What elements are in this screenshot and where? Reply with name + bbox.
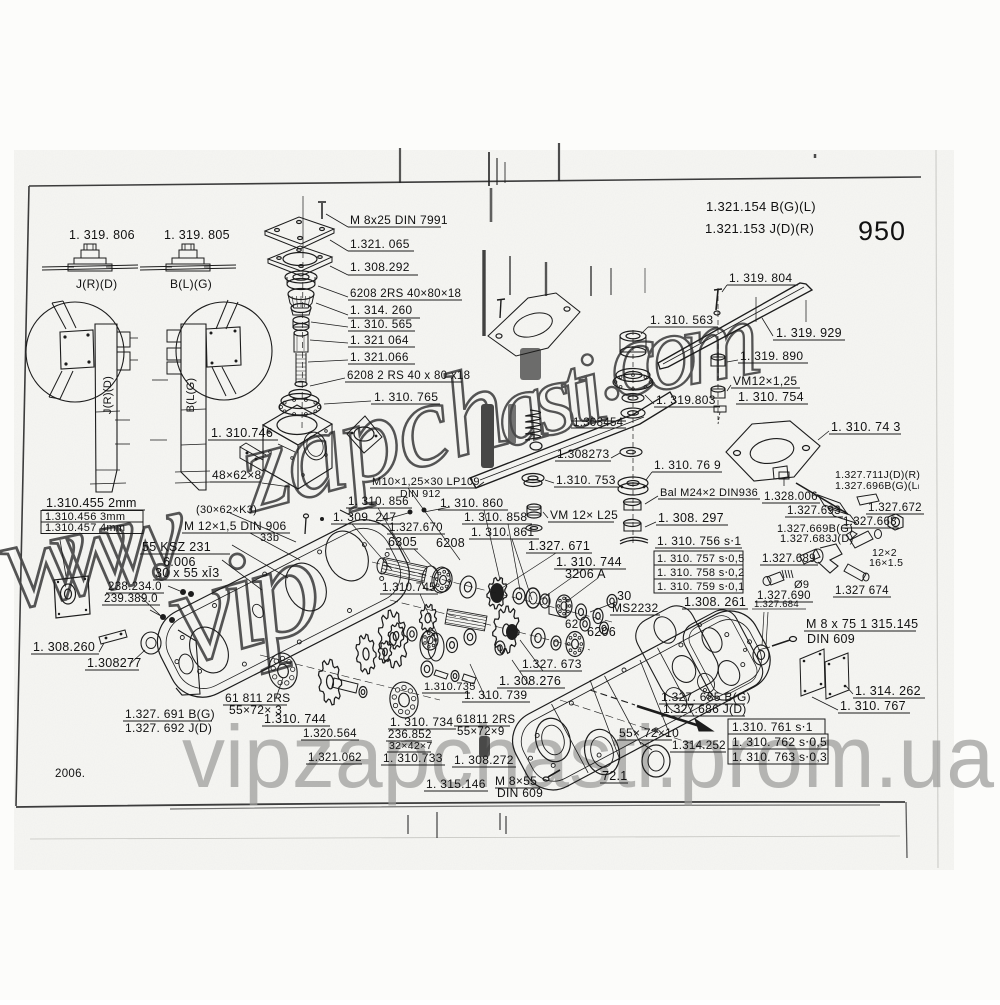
svg-text:30 x 55 xĪ3: 30 x 55 xĪ3 bbox=[155, 566, 219, 580]
svg-text:1.310. 761 s⋅1: 1.310. 761 s⋅1 bbox=[732, 720, 813, 734]
svg-text:1.327.670: 1.327.670 bbox=[389, 522, 443, 534]
svg-text:2006.: 2006. bbox=[55, 768, 85, 780]
svg-text:1.327.683J(D): 1.327.683J(D) bbox=[780, 533, 854, 545]
svg-text:1. 310. 762 s⋅0,5: 1. 310. 762 s⋅0,5 bbox=[732, 735, 827, 749]
svg-text:1.327. 692 J(D): 1.327. 692 J(D) bbox=[125, 721, 212, 735]
svg-text:1.328.006: 1.328.006 bbox=[764, 491, 818, 503]
svg-text:1. 321.066: 1. 321.066 bbox=[350, 350, 409, 364]
svg-text:1. 310. 758 s⋅0,2: 1. 310. 758 s⋅0,2 bbox=[657, 567, 745, 579]
svg-text:55 KSZ 231: 55 KSZ 231 bbox=[142, 540, 211, 554]
svg-text:J(R)(D): J(R)(D) bbox=[76, 277, 117, 291]
svg-text:1. 310. 861: 1. 310. 861 bbox=[471, 525, 534, 539]
svg-text:1.320.564: 1.320.564 bbox=[303, 728, 357, 740]
svg-text:VM12×1,25: VM12×1,25 bbox=[733, 374, 797, 388]
svg-text:1.308277: 1.308277 bbox=[87, 656, 142, 670]
svg-text:MS2232: MS2232 bbox=[612, 601, 659, 615]
svg-text:1.321. 065: 1.321. 065 bbox=[350, 237, 410, 251]
svg-text:1.321.154 B(G)(L): 1.321.154 B(G)(L) bbox=[706, 199, 816, 214]
svg-text:1. 310. 767: 1. 310. 767 bbox=[840, 699, 906, 713]
svg-text:61811 2RS: 61811 2RS bbox=[456, 714, 515, 726]
svg-text:1. 308. 297: 1. 308. 297 bbox=[658, 511, 724, 525]
svg-text:1.327 674: 1.327 674 bbox=[835, 585, 889, 597]
svg-text:(30×62×K3): (30×62×K3) bbox=[196, 504, 257, 516]
svg-text:1. 314. 260: 1. 314. 260 bbox=[350, 303, 412, 317]
svg-text:M 8x25 DIN 7991: M 8x25 DIN 7991 bbox=[350, 213, 448, 227]
svg-text:1. 308.276: 1. 308.276 bbox=[499, 674, 561, 688]
svg-text:B(L(G): B(L(G) bbox=[185, 378, 197, 413]
svg-text:J(R)(D): J(R)(D) bbox=[102, 376, 114, 414]
svg-text:1. 319. 804: 1. 319. 804 bbox=[729, 271, 792, 285]
svg-text:1.327. 671: 1.327. 671 bbox=[528, 539, 590, 553]
svg-text:1. 314. 262: 1. 314. 262 bbox=[855, 684, 921, 698]
svg-text:1. 310. 860: 1. 310. 860 bbox=[440, 496, 503, 510]
svg-text:62: 62 bbox=[565, 619, 578, 631]
svg-text:DIN 609: DIN 609 bbox=[807, 632, 855, 646]
svg-text:1.327.686 J(D): 1.327.686 J(D) bbox=[663, 702, 747, 716]
svg-text:M10×1,25×30 LP109: M10×1,25×30 LP109 bbox=[372, 476, 480, 488]
svg-text:1. 310. 565: 1. 310. 565 bbox=[350, 317, 412, 331]
svg-text:6208 2 RS 40 x 80 x18: 6208 2 RS 40 x 80 x18 bbox=[347, 370, 470, 382]
svg-text:1. 310. 856: 1. 310. 856 bbox=[348, 496, 409, 508]
svg-text:1. 319. 929: 1. 319. 929 bbox=[776, 326, 842, 340]
svg-text:950: 950 bbox=[858, 216, 906, 246]
svg-text:6208 2RS 40×80×18: 6208 2RS 40×80×18 bbox=[350, 288, 461, 300]
svg-text:1. 310. 563: 1. 310. 563 bbox=[650, 313, 713, 327]
svg-text:1.310. 753: 1.310. 753 bbox=[556, 473, 616, 487]
svg-text:1. 310. 858: 1. 310. 858 bbox=[464, 510, 527, 524]
svg-text:238.234.0: 238.234.0 bbox=[108, 581, 162, 593]
svg-text:55× 72×10: 55× 72×10 bbox=[619, 726, 679, 740]
svg-text:1. 319. 890: 1. 319. 890 bbox=[740, 349, 803, 363]
svg-text:1. 321 064: 1. 321 064 bbox=[350, 333, 409, 347]
svg-text:1.327.689: 1.327.689 bbox=[762, 553, 816, 565]
svg-text:1.308273: 1.308273 bbox=[557, 447, 609, 461]
svg-text:48×62×8: 48×62×8 bbox=[212, 468, 262, 482]
svg-text:1.327.684: 1.327.684 bbox=[754, 599, 799, 610]
svg-text:1. 310. 76 9: 1. 310. 76 9 bbox=[654, 458, 721, 472]
svg-text:1. 309. 247: 1. 309. 247 bbox=[333, 510, 396, 524]
svg-text:1. 310. 765: 1. 310. 765 bbox=[374, 390, 438, 404]
svg-text:1. 310. 763 s⋅0,3: 1. 310. 763 s⋅0,3 bbox=[732, 750, 827, 764]
svg-text:1. 315.146: 1. 315.146 bbox=[426, 777, 486, 791]
svg-text:16×1.5: 16×1.5 bbox=[869, 557, 903, 569]
svg-text:72.1: 72.1 bbox=[602, 769, 628, 783]
svg-text:1.310.745: 1.310.745 bbox=[382, 582, 436, 594]
svg-text:1. 310. 739: 1. 310. 739 bbox=[464, 688, 527, 702]
svg-text:1. 319. 806: 1. 319. 806 bbox=[69, 228, 135, 242]
svg-text:6208: 6208 bbox=[436, 536, 465, 550]
svg-text:1.310. 744: 1.310. 744 bbox=[264, 712, 326, 726]
svg-text:6305: 6305 bbox=[388, 535, 417, 549]
svg-text:1.308. 261: 1.308. 261 bbox=[684, 595, 746, 609]
svg-text:1.327.696B(G)(Lₗ: 1.327.696B(G)(Lₗ bbox=[835, 480, 920, 492]
svg-text:1.310.455 2mm: 1.310.455 2mm bbox=[46, 496, 137, 510]
svg-text:1. 308.292: 1. 308.292 bbox=[350, 260, 410, 274]
svg-text:3206 A: 3206 A bbox=[565, 567, 606, 581]
svg-text:1.327.693: 1.327.693 bbox=[787, 505, 841, 517]
svg-text:1. 310. 759 s⋅0,1: 1. 310. 759 s⋅0,1 bbox=[657, 581, 745, 593]
svg-text:55×72×9: 55×72×9 bbox=[457, 726, 505, 738]
svg-text:1.327. 673: 1.327. 673 bbox=[522, 657, 582, 671]
svg-text:1. 310.746: 1. 310.746 bbox=[211, 426, 273, 440]
svg-text:1.327. 691 B(G): 1.327. 691 B(G) bbox=[125, 707, 215, 721]
svg-text:1. 310. 74 3: 1. 310. 74 3 bbox=[831, 420, 901, 434]
svg-text:1. 310. 757 s⋅0,5: 1. 310. 757 s⋅0,5 bbox=[657, 553, 745, 565]
svg-text:M 8 x 75 1 315.145: M 8 x 75 1 315.145 bbox=[806, 617, 918, 631]
svg-text:1. 310. 754: 1. 310. 754 bbox=[738, 390, 804, 404]
svg-text:Bal M24×2 DIN936: Bal M24×2 DIN936 bbox=[660, 487, 758, 499]
svg-text:239.389.0: 239.389.0 bbox=[104, 593, 158, 605]
svg-text:1. 310.733: 1. 310.733 bbox=[383, 751, 443, 765]
svg-text:1. 319. 805: 1. 319. 805 bbox=[164, 228, 230, 242]
svg-text:VM 12× L25: VM 12× L25 bbox=[550, 508, 618, 522]
svg-text:1.321.153 J(D)(R): 1.321.153 J(D)(R) bbox=[705, 221, 814, 236]
svg-text:B(L)(G): B(L)(G) bbox=[170, 277, 212, 291]
svg-text:1.321.062: 1.321.062 bbox=[308, 752, 362, 764]
svg-text:1.308454: 1.308454 bbox=[573, 417, 624, 429]
svg-text:1. 310. 734: 1. 310. 734 bbox=[390, 715, 453, 729]
svg-text:1. 308.260: 1. 308.260 bbox=[33, 640, 95, 654]
svg-text:1.310.457 4mm: 1.310.457 4mm bbox=[45, 522, 125, 534]
svg-text:1. 310. 756 s⋅1: 1. 310. 756 s⋅1 bbox=[657, 534, 741, 548]
svg-text:1.327.672: 1.327.672 bbox=[868, 502, 922, 514]
